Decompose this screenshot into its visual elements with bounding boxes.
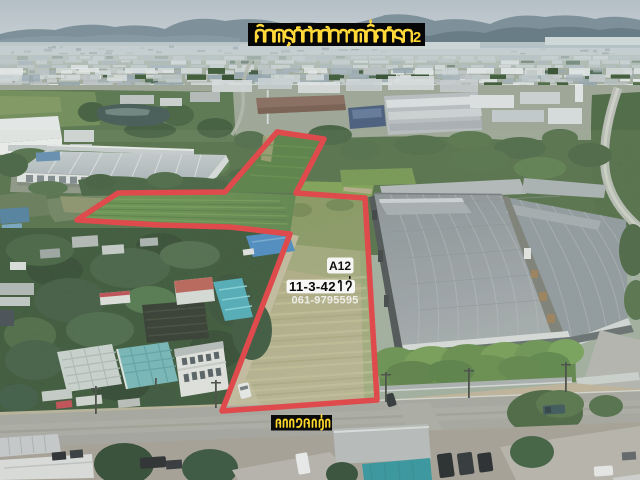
svg-text:A12: A12	[329, 259, 351, 273]
svg-text:2: 2	[413, 29, 421, 46]
svg-text:11-3-42: 11-3-42	[289, 279, 336, 294]
svg-text:061-9795595: 061-9795595	[291, 295, 358, 307]
